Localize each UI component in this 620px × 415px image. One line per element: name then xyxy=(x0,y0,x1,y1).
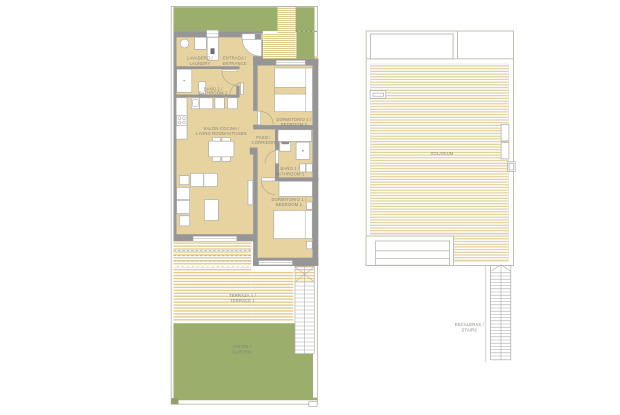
svg-text:LAUNDRY: LAUNDRY xyxy=(190,61,211,66)
svg-text:BATHROOM 2: BATHROOM 2 xyxy=(199,91,228,96)
svg-text:STAIRS: STAIRS xyxy=(462,328,478,333)
svg-text:CORRIDOR: CORRIDOR xyxy=(252,140,276,145)
svg-text:BEDROOM 1: BEDROOM 1 xyxy=(276,202,303,207)
svg-text:ESCALERAS /: ESCALERAS / xyxy=(455,322,485,327)
svg-text:SOLARIUM: SOLARIUM xyxy=(431,151,454,156)
svg-text:LAVADERO /: LAVADERO / xyxy=(187,56,214,61)
svg-text:SALÓN-COCINA /: SALÓN-COCINA / xyxy=(203,126,240,131)
svg-text:JARDIN /: JARDIN / xyxy=(232,344,251,349)
svg-text:BEDROOM 2: BEDROOM 2 xyxy=(281,122,308,127)
svg-text:BATHROOM 1: BATHROOM 1 xyxy=(276,171,305,176)
svg-text:DORMITORIO 1 /: DORMITORIO 1 / xyxy=(271,197,307,202)
svg-text:TERRACE 1: TERRACE 1 xyxy=(230,298,255,303)
svg-text:LIVING ROOM-KITCHEN: LIVING ROOM-KITCHEN xyxy=(196,131,246,136)
svg-text:BAÑO 1 /: BAÑO 1 / xyxy=(281,166,301,171)
svg-text:GARDEN: GARDEN xyxy=(232,349,251,354)
svg-text:ENTRANCE: ENTRANCE xyxy=(223,61,247,66)
svg-text:ENTRADA /: ENTRADA / xyxy=(223,56,247,61)
